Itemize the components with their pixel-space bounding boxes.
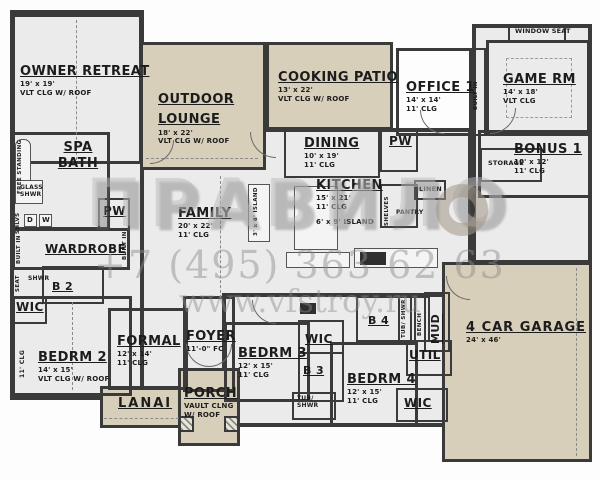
foyer-name: FOYER <box>186 329 236 344</box>
label-bonus1: BONUS 1 10' x 12' 11' CLG <box>514 138 582 176</box>
cooking-patio-dims: 13' x 22' <box>278 86 398 95</box>
family-dims: 20' x 22' <box>178 222 231 231</box>
bedrm3-name: BEDRM 3 <box>238 346 307 361</box>
small-island <box>248 184 270 242</box>
cooking-patio-ceiling: VLT CLG W/ ROOF <box>278 95 398 104</box>
bonus1-dims: 10' x 12' <box>514 158 582 167</box>
office1-dims: 14' x 14' <box>406 96 475 105</box>
bonus1-ceiling: 11' CLG <box>514 167 582 176</box>
label-tub-shwr4: TUB/ SHWR <box>401 300 407 338</box>
label-b2: B 2 <box>52 280 73 294</box>
porch-name: PORCH <box>184 386 237 401</box>
outdoor-lounge-ceiling: VLT CLG W/ ROOF <box>158 137 236 146</box>
label-family: FAMILY 20' x 22' 11' CLG <box>178 202 231 240</box>
label-b3: B 3 <box>303 364 324 378</box>
label-bedrm2: BEDRM 2 14' x 15' VLT CLG W/ ROOF <box>38 346 110 384</box>
label-cooking-patio: COOKING PATIO 13' x 22' VLT CLG W/ ROOF <box>278 66 398 104</box>
kitchen-ceiling: 11' CLG <box>316 203 383 212</box>
bedrm2-name: BEDRM 2 <box>38 350 107 365</box>
label-storage: STORAGE <box>488 160 524 167</box>
label-pantry: PANTRY <box>396 210 423 217</box>
label-seat: SEAT <box>15 270 21 292</box>
kitchen-counter-left <box>286 252 350 268</box>
owner-retreat-name: OWNER RETREAT <box>20 64 149 79</box>
formal-dims: 12' x 14' <box>117 350 181 359</box>
label-built-in-office: BUILT IN <box>473 62 479 110</box>
label-wic4: WIC <box>404 396 432 411</box>
bedrm4-name: BEDRM 4 <box>347 372 416 387</box>
floor-plan: OWNER RETREAT 19' x 19' VLT CLG W/ ROOF … <box>0 0 600 481</box>
outdoor-lounge-name: OUTDOOR LOUNGE <box>158 92 234 127</box>
garage-dash <box>576 268 577 456</box>
outdoor-lounge-dims: 18' x 22' <box>158 129 236 138</box>
family-ceiling: 11' CLG <box>178 231 231 240</box>
label-washer: W <box>42 216 50 224</box>
label-spa-bath: SPA BATH <box>52 140 104 173</box>
label-tub-shwr3: TUB/ SHWR <box>297 396 327 410</box>
garage-dims: 24' x 46' <box>466 336 586 345</box>
fireplace <box>300 303 316 314</box>
label-dining: DINING 10' x 19' 11' CLG <box>304 132 359 170</box>
label-small-island: 3' x 8' ISLAND <box>253 192 259 236</box>
foyer-ceiling: 11'-0" FC <box>186 345 236 354</box>
label-wic3: WIC <box>305 332 333 347</box>
game-rm-dims: 14' x 18' <box>503 88 576 97</box>
range-appliance <box>360 252 386 265</box>
label-built-in-left: BUILT IN <box>16 236 22 264</box>
label-bedrm2-side: 11' CLG <box>19 344 26 378</box>
label-outdoor-lounge: OUTDOOR LOUNGE 18' x 22' VLT CLG W/ ROOF <box>158 88 236 146</box>
bedrm3-ceiling: 11' CLG <box>238 371 307 380</box>
label-game-rm: GAME RM 14' x 18' VLT CLG <box>503 68 576 106</box>
label-kitchen: KITCHEN 15' x 21' 11' CLG 6' x 9' ISLAND <box>316 174 383 227</box>
label-lanai: LANAI <box>118 396 172 412</box>
label-shwr: SHWR <box>28 276 49 283</box>
kitchen-name: KITCHEN <box>316 178 383 193</box>
dining-name: DINING <box>304 136 359 151</box>
label-b4: B 4 <box>368 314 389 328</box>
kitchen-dims: 15' x 21' <box>316 194 383 203</box>
label-porch: PORCH VAULT CLNG W/ ROOF <box>184 382 236 420</box>
label-bedrm3: BEDRM 3 12' x 15' 11' CLG <box>238 342 307 380</box>
label-garage: 4 CAR GARAGE 24' x 46' <box>466 316 586 345</box>
office1-name: OFFICE 1 <box>406 80 475 95</box>
office1-ceiling: 11' CLG <box>406 105 475 114</box>
cooking-patio-name: COOKING PATIO <box>278 70 398 85</box>
lanai-dash <box>104 418 184 419</box>
label-dryer: D <box>27 216 33 224</box>
label-owner-retreat: OWNER RETREAT 19' x 19' VLT CLG W/ ROOF <box>20 60 149 98</box>
owner-retreat-dims: 19' x 19' <box>20 80 149 89</box>
garage-name: 4 CAR GARAGE <box>466 320 586 335</box>
label-office1: OFFICE 1 14' x 14' 11' CLG <box>406 76 475 114</box>
label-wic2: WIC <box>16 300 44 315</box>
label-formal: FORMAL 12' x 14' 11' CLG <box>117 330 181 368</box>
bonus1-name: BONUS 1 <box>514 142 582 157</box>
label-shelves: SHELVES <box>384 192 390 226</box>
dining-ceiling: 11' CLG <box>304 161 359 170</box>
label-window-seat: WINDOW SEAT <box>515 28 571 35</box>
label-util: UTIL <box>409 348 441 363</box>
label-shlvs: SHLVS <box>15 210 21 234</box>
bedrm2-ceiling: VLT CLG W/ ROOF <box>38 375 110 384</box>
owner-retreat-ceiling: VLT CLG W/ ROOF <box>20 89 149 98</box>
bedrm3-dims: 12' x 15' <box>238 362 307 371</box>
porch-ceiling: VAULT CLNG W/ ROOF <box>184 402 236 420</box>
label-wardrobe: WARDROBE <box>45 242 126 257</box>
family-name: FAMILY <box>178 206 231 221</box>
label-bench: BENCH <box>417 302 423 336</box>
label-pw-left: PW <box>103 204 126 219</box>
formal-ceiling: 11' CLG <box>117 359 181 368</box>
game-rm-ceiling: VLT CLG <box>503 97 576 106</box>
label-foyer: FOYER 11'-0" FC <box>186 325 236 354</box>
label-glass-shwr: GLASS SHWR <box>20 185 50 199</box>
dining-dims: 10' x 19' <box>304 152 359 161</box>
bedrm2-dims: 14' x 15' <box>38 366 110 375</box>
label-linen: LINEN <box>419 186 442 193</box>
label-mud: MUD <box>429 300 442 344</box>
label-built-in-right: BUILT IN <box>122 232 128 260</box>
label-pw-dining: PW <box>389 134 412 149</box>
formal-name: FORMAL <box>117 334 181 349</box>
game-rm-name: GAME RM <box>503 72 576 87</box>
kitchen-island-label: 6' x 9' ISLAND <box>316 218 383 227</box>
